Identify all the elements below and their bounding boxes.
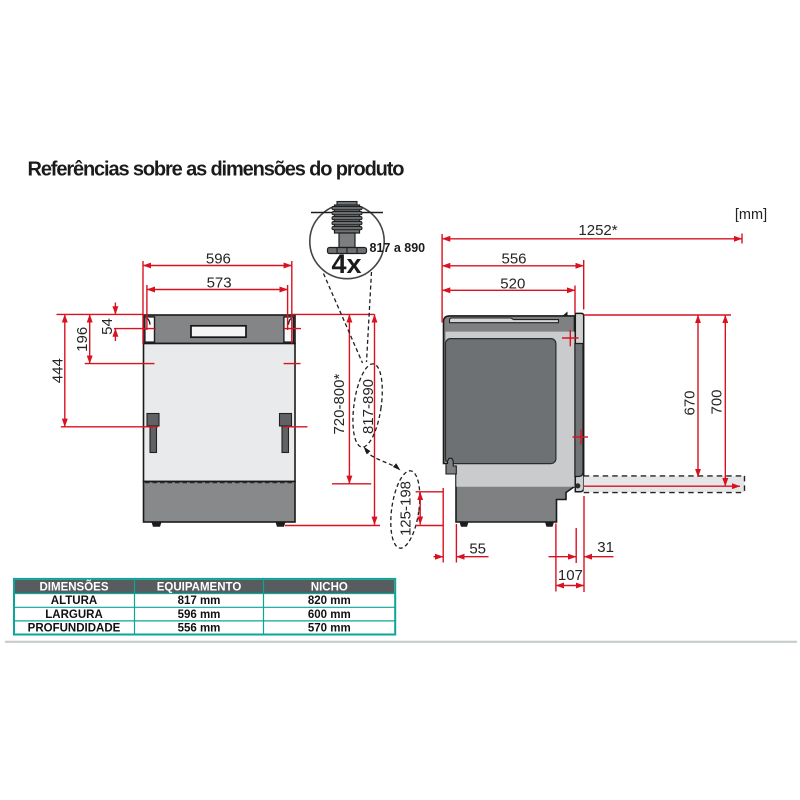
svg-text:LARGURA: LARGURA bbox=[45, 609, 103, 621]
svg-text:196: 196 bbox=[74, 327, 91, 352]
svg-text:817-890: 817-890 bbox=[360, 379, 377, 434]
svg-text:ALTURA: ALTURA bbox=[51, 595, 97, 607]
svg-text:820 mm: 820 mm bbox=[308, 595, 351, 607]
svg-text:Referências sobre as dimensões: Referências sobre as dimensões do produt… bbox=[28, 159, 405, 181]
svg-text:596 mm: 596 mm bbox=[178, 609, 221, 621]
svg-text:[mm]: [mm] bbox=[735, 207, 767, 223]
svg-text:EQUIPAMENTO: EQUIPAMENTO bbox=[157, 581, 242, 593]
svg-text:520: 520 bbox=[500, 276, 525, 293]
svg-text:570 mm: 570 mm bbox=[308, 622, 351, 634]
svg-text:PROFUNDIDADE: PROFUNDIDADE bbox=[28, 622, 121, 634]
svg-text:600 mm: 600 mm bbox=[308, 609, 351, 621]
svg-text:1252*: 1252* bbox=[578, 222, 617, 239]
svg-text:54: 54 bbox=[99, 318, 116, 335]
svg-text:670: 670 bbox=[681, 390, 698, 415]
svg-text:556: 556 bbox=[501, 250, 526, 267]
svg-text:NICHO: NICHO bbox=[311, 581, 348, 593]
svg-text:125-198: 125-198 bbox=[397, 481, 414, 536]
svg-text:55: 55 bbox=[469, 540, 486, 557]
svg-text:817 a 890: 817 a 890 bbox=[370, 241, 426, 255]
svg-text:107: 107 bbox=[558, 567, 583, 584]
svg-text:596: 596 bbox=[206, 250, 231, 267]
svg-text:817 mm: 817 mm bbox=[178, 595, 221, 607]
svg-text:444: 444 bbox=[50, 358, 67, 383]
svg-text:720-800*: 720-800* bbox=[331, 373, 348, 434]
svg-text:DIMENSÕES: DIMENSÕES bbox=[39, 580, 108, 593]
svg-text:573: 573 bbox=[207, 274, 232, 291]
svg-text:700: 700 bbox=[709, 389, 726, 414]
svg-text:4x: 4x bbox=[331, 249, 361, 279]
svg-text:31: 31 bbox=[597, 539, 614, 556]
svg-text:556 mm: 556 mm bbox=[178, 622, 221, 634]
